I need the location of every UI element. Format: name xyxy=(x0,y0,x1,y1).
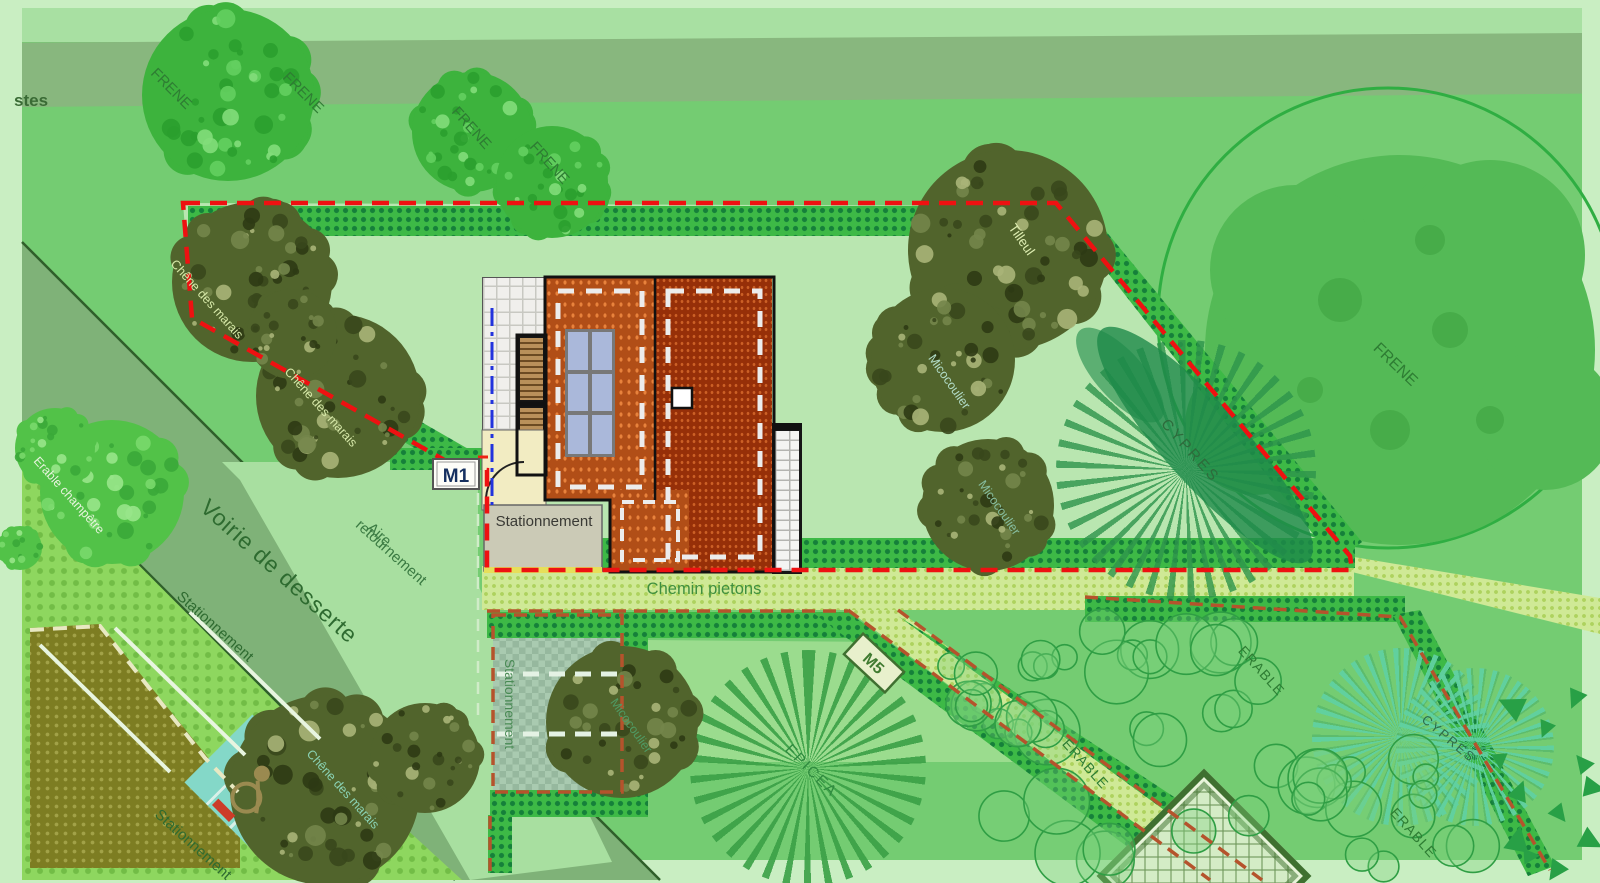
label-parking: Stationnement xyxy=(151,806,235,883)
olive-dash-border xyxy=(30,626,238,792)
roof-hatch xyxy=(672,388,692,408)
detail-layer: M1 M5 stes FRENE FRENE FRENE FRENE FRENE… xyxy=(0,0,1600,883)
roof-dash-east xyxy=(668,291,760,557)
label-parking: Stationnement xyxy=(496,513,594,530)
label-spruce: EPICEA xyxy=(781,741,840,800)
label-pedestrian-path: Chemin pietons xyxy=(647,580,762,598)
marker-m5: M5 xyxy=(844,634,904,693)
dark-conifer-overlay xyxy=(1062,303,1338,587)
marker-m1: M1 xyxy=(433,459,479,489)
label-parking: Stationnement xyxy=(173,588,257,666)
conifer-scatter xyxy=(1491,687,1600,883)
label-parking: Stationnement xyxy=(502,659,518,749)
label-ash: FRENE xyxy=(1370,340,1421,390)
street-label-fragment: stes xyxy=(14,91,48,110)
roof-dash-west xyxy=(558,291,642,487)
site-plan: M1 M5 stes FRENE FRENE FRENE FRENE FRENE… xyxy=(0,0,1600,883)
tree-canopies xyxy=(0,2,1116,883)
label-turning-area: retournement xyxy=(352,516,430,589)
marker-m1-label: M1 xyxy=(443,466,470,487)
